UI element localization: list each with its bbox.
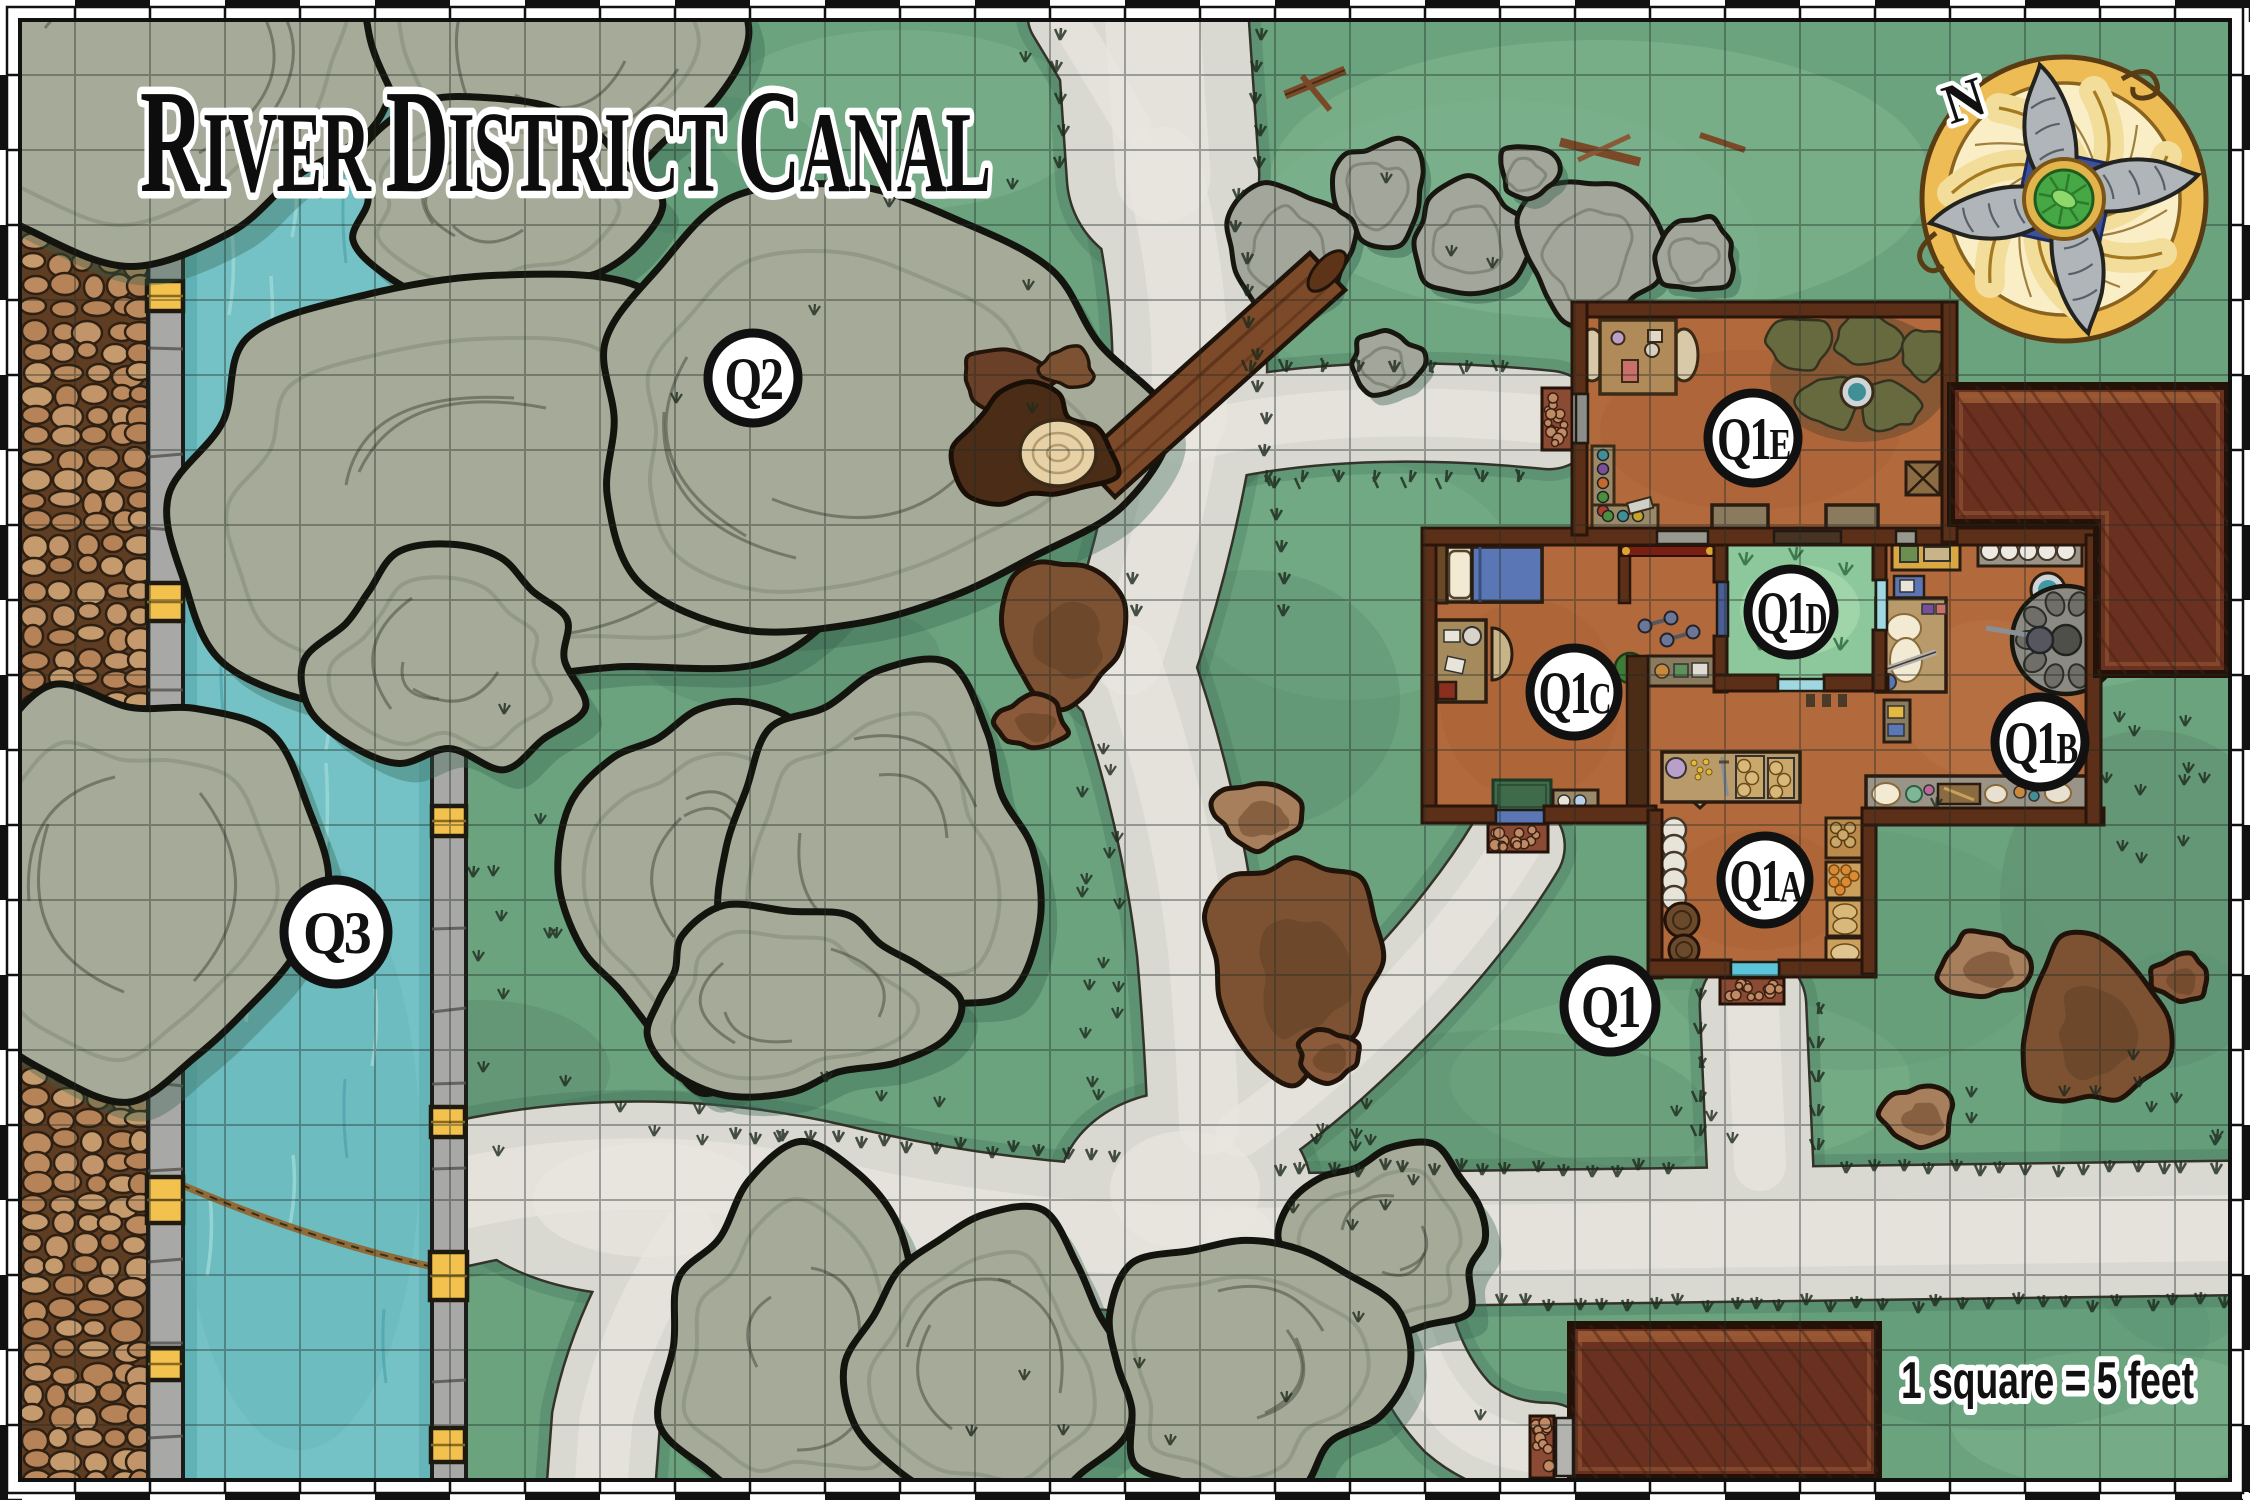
svg-text:1 square = 5 feet: 1 square = 5 feet (1901, 1352, 2194, 1410)
svg-text:Q3: Q3 (303, 900, 370, 966)
svg-text:Q1: Q1 (1581, 974, 1639, 1040)
svg-text:Q2: Q2 (725, 346, 783, 412)
